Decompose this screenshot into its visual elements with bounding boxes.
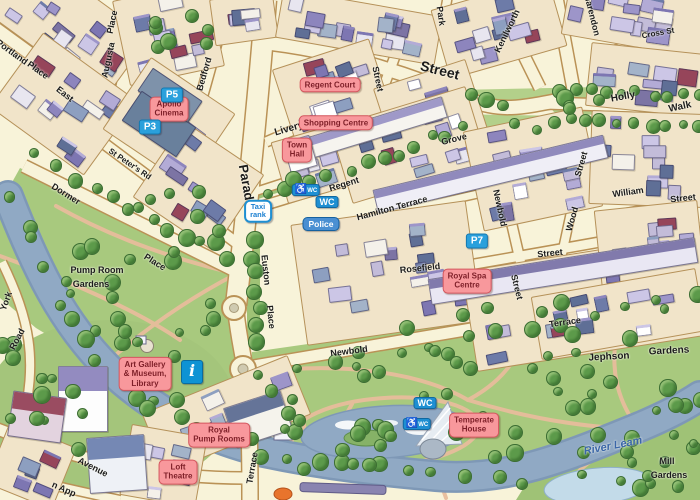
street-label-street: Street (670, 192, 696, 205)
place-label-town-hall: TownHall (282, 138, 312, 163)
wheelchair-icon: ♿ (295, 185, 307, 195)
police-station-badge: Police (302, 217, 339, 231)
street-label-street: Street (509, 273, 525, 300)
street-label-augusta: Augusta (99, 41, 116, 78)
street-label-bedford: Bedford (194, 56, 213, 92)
place-label-loft-theatre: LoftTheatre (159, 460, 198, 485)
street-label-york: York (0, 290, 14, 312)
place-label-line: Cinema (155, 109, 184, 118)
street-label-terrace: Terrace (244, 451, 259, 484)
taxi-rank-label-line: rank (250, 211, 266, 219)
street-label-portland: Portland (0, 37, 30, 67)
street-label-east: East (54, 84, 75, 104)
accessible-wc-badge: ♿WC (292, 184, 320, 196)
place-label-line: Royal (193, 426, 245, 435)
place-label-line: & Museum, (124, 369, 167, 378)
street-label-william: William (612, 185, 645, 199)
place-label-line: House (454, 425, 494, 434)
wc-label: WC (418, 422, 428, 428)
street-label-st-peter-s-rd: St Peter's Rd (107, 146, 153, 181)
street-label-street: Street (537, 247, 563, 260)
water-label-river-leam: River Leam (583, 434, 644, 457)
place-label-line: Town (287, 141, 307, 150)
town-map: PortlandPlaceEastPlaceAugustaBedfordSt P… (0, 0, 700, 500)
place-label-line: Regent Court (305, 80, 356, 89)
street-label-park: Park (435, 6, 448, 27)
street-label-dormer: Dormer (50, 181, 82, 206)
place-label-line: Temperate (454, 416, 494, 425)
place-label-regent-court: Regent Court (300, 77, 361, 92)
place-label-line: Centre (448, 281, 487, 290)
place-label-line: Pump Rooms (193, 435, 245, 444)
street-label-place: Place (142, 252, 167, 273)
park-label-jephson: Jephson (588, 350, 630, 363)
place-label-line: Hall (287, 150, 307, 159)
place-label-line: Shopping Centre (304, 118, 368, 127)
street-label-avenue: Avenue (76, 455, 109, 479)
wc-label: WC (307, 188, 317, 194)
accessible-wc-badge: ♿WC (403, 418, 431, 430)
park-label-mill: Mill (660, 456, 675, 466)
street-label-place: Place (105, 9, 120, 34)
street-label-holly: Holly (610, 89, 636, 104)
information-icon: i (181, 360, 203, 384)
park-label-gardens: Gardens (651, 470, 688, 480)
street-label-newbold: Newbold (330, 344, 368, 358)
street-label-newbold: Newbold (491, 189, 509, 228)
place-label-line: Theatre (164, 472, 193, 481)
place-label-line: Library (124, 379, 167, 388)
park-label-pump-room: Pump Room (71, 265, 124, 275)
wc-badge: WC (316, 196, 339, 208)
street-label-street: Street (370, 65, 385, 92)
parking-badge-p3: P3 (139, 120, 161, 135)
wc-badge: WC (414, 397, 437, 409)
wheelchair-icon: ♿ (406, 419, 418, 429)
place-label-line: Art Gallery (124, 360, 167, 369)
street-label-road: Road (7, 327, 26, 352)
street-label-kenilworth: Kenilworth (492, 8, 521, 54)
place-label-line: Royal Spa (448, 272, 487, 281)
street-label-street: Street (573, 150, 590, 177)
place-label-temperate-house: TemperateHouse (449, 413, 499, 438)
street-label-place: Place (265, 305, 277, 329)
street-label-wood: Wood (564, 206, 580, 233)
street-label-euston: Euston (259, 254, 272, 285)
place-label-royal-pump-rooms: RoyalPump Rooms (188, 423, 250, 448)
park-label-gardens: Gardens (73, 279, 110, 289)
parking-badge-p7: P7 (466, 234, 488, 249)
street-label-hamilton-terrace: Hamilton Terrace (356, 194, 429, 223)
place-label-royal-spa-centre: Royal SpaCentre (443, 269, 492, 294)
labels-layer: PortlandPlaceEastPlaceAugustaBedfordSt P… (0, 0, 700, 500)
parking-badge-p5: P5 (161, 88, 183, 103)
taxi-rank-badge: Taxirank (244, 200, 272, 223)
street-label-regent: Regent (328, 175, 360, 193)
street-label-grove: Grove (440, 131, 468, 147)
place-label-art-gallery-museum-library: Art Gallery& Museum,Library (119, 357, 172, 391)
place-label-line: Loft (164, 463, 193, 472)
street-label-terrace: Terrace (549, 315, 582, 329)
place-label-shopping-centre: Shopping Centre (299, 115, 373, 130)
street-label-n-app: n App (50, 479, 77, 498)
street-label-place: Place (26, 59, 51, 81)
park-label-gardens: Gardens (648, 344, 689, 357)
street-label-street: Street (419, 57, 461, 82)
street-label-clarendon: Clarendon (582, 0, 602, 37)
street-label-walk: Walk (668, 99, 693, 115)
street-label-rosefield: Rosefield (399, 261, 440, 275)
street-label-cross-st: Cross St (641, 26, 675, 41)
